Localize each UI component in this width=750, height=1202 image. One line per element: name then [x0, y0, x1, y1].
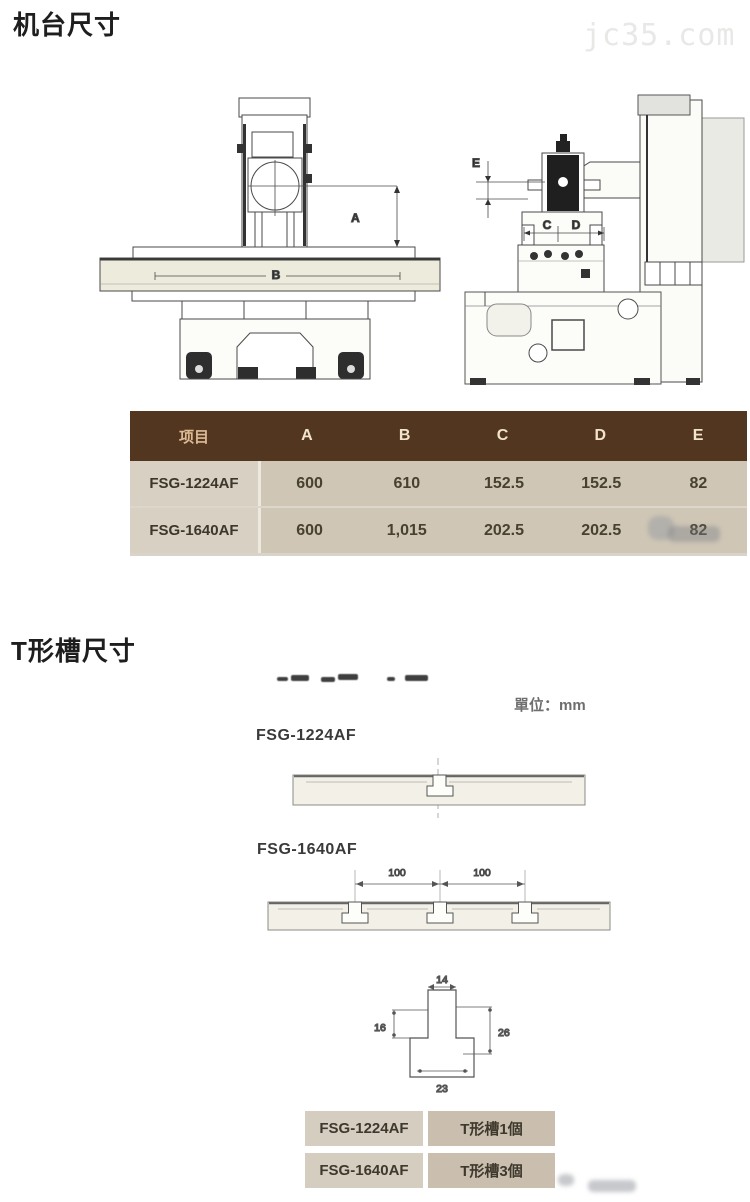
tslot-profile-1640: 100 100	[262, 856, 614, 934]
dim-bottom-width: 23	[436, 1083, 448, 1095]
model-cell: FSG-1224AF	[305, 1111, 423, 1146]
header-d: D	[551, 411, 649, 461]
unit-label: 單位：mm	[514, 694, 586, 715]
column-top-cap	[239, 98, 310, 117]
watermark-logo	[558, 1174, 574, 1186]
value-cell: 600	[261, 508, 358, 553]
model-cell: FSG-1640AF	[130, 508, 261, 553]
header-c: C	[454, 411, 552, 461]
machine-dimensions-title: 机台尺寸	[13, 5, 121, 42]
dim-slot-spacing-2: 100	[473, 867, 491, 879]
value-cell: 1,015	[358, 508, 455, 553]
saddle-assembly	[518, 245, 604, 292]
model-cell: FSG-1640AF	[305, 1153, 423, 1188]
table-header-row: 项目 A B C D E	[130, 411, 747, 461]
tslot-count-table: FSG-1224AF T形槽1個 FSG-1640AF T形槽3個	[305, 1111, 555, 1195]
site-watermark: jc35.com	[583, 18, 736, 53]
value-cell: 202.5	[553, 508, 650, 553]
value-cell: 152.5	[553, 461, 650, 506]
dim-left-depth: 16	[374, 1022, 386, 1034]
value-cell: 202.5	[455, 508, 552, 553]
tslot-dimensions-title: T形槽尺寸	[11, 631, 136, 668]
catalog-page: 机台尺寸 jc35.com A	[0, 0, 750, 1202]
table-row: FSG-1640AF T形槽3個	[305, 1153, 555, 1188]
header-e: E	[649, 411, 747, 461]
dim-top-width: 14	[436, 974, 448, 986]
side-view-drawing: E C D	[448, 85, 748, 393]
header-a: A	[258, 411, 356, 461]
table-row: FSG-1224AF T形槽1個	[305, 1111, 555, 1146]
tslot-detail-drawing: 14 16 26 23	[350, 974, 535, 1099]
value-cell: 600	[261, 461, 358, 506]
slot-count-cell: T形槽3個	[428, 1153, 555, 1188]
value-cell: 82	[650, 461, 747, 506]
value-cell: 152.5	[455, 461, 552, 506]
front-view-drawing: A B	[98, 86, 443, 394]
profile-label-1224: FSG-1224AF	[256, 727, 356, 745]
dim-label-e: E	[472, 156, 480, 170]
dim-label-d: D	[572, 218, 581, 232]
dim-label-b: B	[272, 268, 281, 282]
header-b: B	[356, 411, 454, 461]
watermark-logo	[668, 526, 720, 542]
dim-label-c: C	[543, 218, 552, 232]
table-row: FSG-1224AF 600 610 152.5 152.5 82	[130, 461, 747, 506]
rear-panel	[702, 118, 744, 262]
dim-slot-spacing-1: 100	[388, 867, 406, 879]
model-cell: FSG-1224AF	[130, 461, 261, 506]
dim-right-depth: 26	[498, 1027, 510, 1039]
value-cell: 610	[358, 461, 455, 506]
slot-count-cell: T形槽1個	[428, 1111, 555, 1146]
tslot-profile-1224	[286, 756, 590, 820]
dim-label-a: A	[351, 211, 360, 225]
watermark-logo	[588, 1180, 636, 1192]
header-item: 项目	[130, 411, 258, 461]
